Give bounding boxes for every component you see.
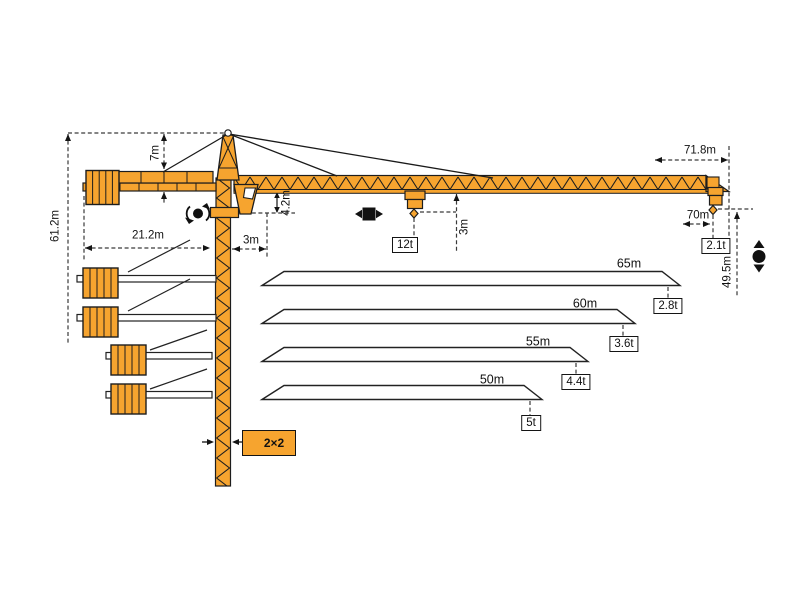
jib-variant-50m [262,386,542,400]
label-jib-60m: 60m [573,298,597,311]
jib-variant-60m [262,310,635,324]
trolley-hook [405,191,425,218]
badge-tip-load: 2.1t [701,238,730,254]
badge-tip-load-55m: 4.4t [561,374,590,390]
slewing-turntable [211,208,239,218]
jib-tip-hook [708,188,723,215]
badge-tip-load-50m: 5t [521,415,541,431]
counterweight-variant-3 [111,345,146,375]
counterweight-variant-4 [111,384,146,414]
label-jib-50m: 50m [480,374,504,387]
label-cathead-height: 7m [150,145,163,161]
label-counter-jib-radius: 21.2m [132,230,164,243]
badge-max-capacity: 12t [392,237,418,253]
label-max-hook-radius: 70m [687,210,709,223]
label-mast-section: 2×2 [264,436,284,450]
counter-jib-panels [118,172,213,184]
label-jib-65m: 65m [617,258,641,271]
label-jib-55m: 55m [526,336,550,349]
badge-tip-load-60m: 3.6t [609,336,638,352]
jib-depth-dimension [274,192,280,213]
counterweight-variants [77,240,216,414]
trolley-travel-icon [355,208,383,221]
slewing-rotation-icon [185,203,210,224]
main-jib [234,176,729,194]
apex-pulley [225,130,231,136]
counterweight-blocks [86,171,119,205]
tower-mast [216,218,231,487]
counter-jib [83,171,216,205]
label-rear-clearance: 3m [243,235,259,248]
crane-structure [83,130,729,486]
label-hook-to-jib: 3m [459,219,472,235]
jib-variant-55m [262,348,588,362]
label-hook-height: 49.5m [722,256,735,288]
label-max-radius: 71.8m [684,145,716,158]
crane-load-diagram: 61.2m 7m 21.2m 3m 4.2m 3m 71.8m 70m 49.5… [0,0,800,600]
badge-tip-load-65m: 2.8t [653,298,682,314]
tower-head [216,178,231,208]
label-total-height: 61.2m [50,210,63,242]
jib-variant-65m [262,272,680,286]
mast-section-badge: 2×2 [242,430,296,456]
cat-head [217,135,239,180]
label-jib-section-height: 4.2m [281,190,294,216]
hook-hoist-icon [753,240,766,273]
counterweight-variant-2 [83,307,118,337]
counterweight-variant-1 [83,268,118,298]
